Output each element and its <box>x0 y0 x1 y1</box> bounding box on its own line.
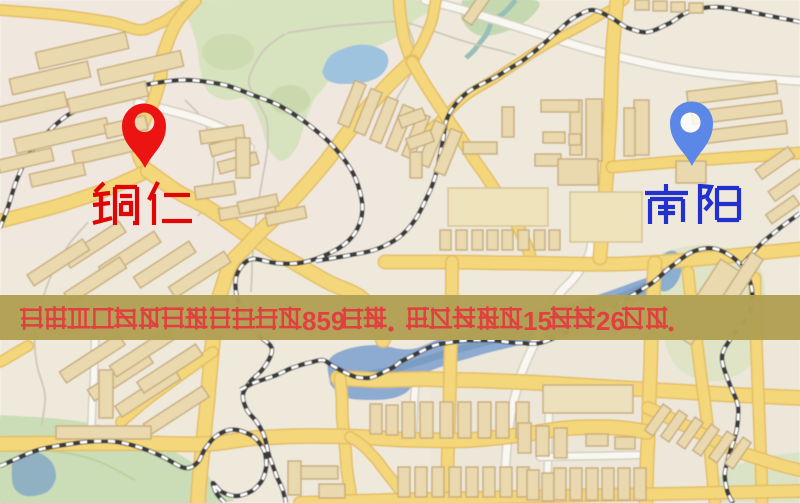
svg-text:15: 15 <box>523 306 552 336</box>
svg-text:26: 26 <box>596 306 625 336</box>
svg-text:859: 859 <box>302 306 345 336</box>
